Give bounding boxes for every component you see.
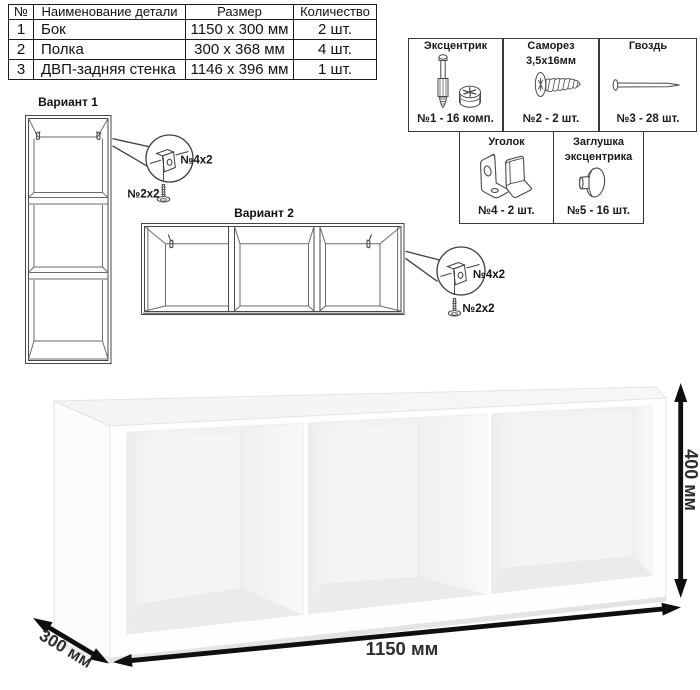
svg-text:1150 мм: 1150 мм (366, 638, 439, 659)
svg-text:№4х2: №4х2 (181, 155, 213, 167)
svg-text:№2х2: №2х2 (463, 303, 495, 315)
svg-text:Вариант 1: Вариант 1 (38, 95, 98, 109)
svg-text:400 мм: 400 мм (681, 449, 700, 511)
svg-text:№4х2: №4х2 (473, 269, 505, 281)
svg-text:Вариант 2: Вариант 2 (234, 206, 294, 220)
svg-text:№2х2: №2х2 (128, 189, 160, 201)
